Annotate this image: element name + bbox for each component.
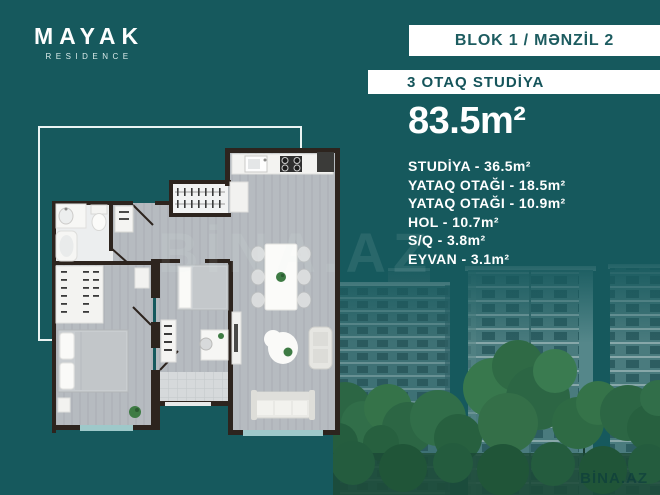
plant-icon <box>129 406 141 418</box>
double-bed <box>58 330 128 392</box>
desk-chair <box>200 338 212 350</box>
room-area-item: HOL - 10.7m² <box>408 213 566 232</box>
toilet-icon <box>91 205 107 231</box>
wardrobe <box>56 266 103 323</box>
room-area-item: STUDİYA - 36.5m² <box>408 157 566 176</box>
room-area-item: EYVAN - 3.1m² <box>408 250 566 269</box>
watermark: BİNA.AZ <box>580 470 648 487</box>
armchair <box>309 327 332 369</box>
brand-tagline: RESIDENCE <box>34 52 144 61</box>
apartment-type-text: 3 OTAQ STUDİYA <box>407 74 544 91</box>
plant-icon <box>284 348 293 357</box>
fridge <box>230 182 248 212</box>
vanity-sink <box>56 204 86 228</box>
plant-icon <box>218 333 224 339</box>
block-apartment-label: BLOK 1 / MƏNZİL 2 <box>409 25 660 56</box>
stove-icon <box>280 156 302 172</box>
hall-cabinet <box>115 206 133 232</box>
brand-logo: MAYAK RESIDENCE <box>34 24 144 61</box>
room-area-item: YATAQ OTAĞI - 18.5m² <box>408 176 566 195</box>
kitchen-cabinet <box>317 152 334 172</box>
shelf-unit <box>161 320 176 362</box>
nightstand <box>58 398 70 412</box>
brand-name: MAYAK <box>34 24 144 48</box>
apartment-type-band: 3 OTAQ STUDİYA <box>368 70 660 94</box>
residence-buildings-illustration <box>333 258 660 495</box>
block-apartment-text: BLOK 1 / MƏNZİL 2 <box>455 32 614 50</box>
watermark: BİNA.AZ <box>158 220 434 285</box>
tv-bench <box>232 312 241 364</box>
total-area: 83.5m² <box>408 100 525 143</box>
room-area-list: STUDİYA - 36.5m² YATAQ OTAĞI - 18.5m² YA… <box>408 157 566 269</box>
bathtub-icon <box>56 231 77 261</box>
room-area-item: S/Q - 3.8m² <box>408 231 566 250</box>
sofa <box>251 390 315 420</box>
desk <box>200 330 228 360</box>
room-area-item: YATAQ OTAĞI - 10.9m² <box>408 194 566 213</box>
floor-plan <box>25 118 355 463</box>
dresser <box>135 268 149 288</box>
sink-icon <box>245 156 267 172</box>
